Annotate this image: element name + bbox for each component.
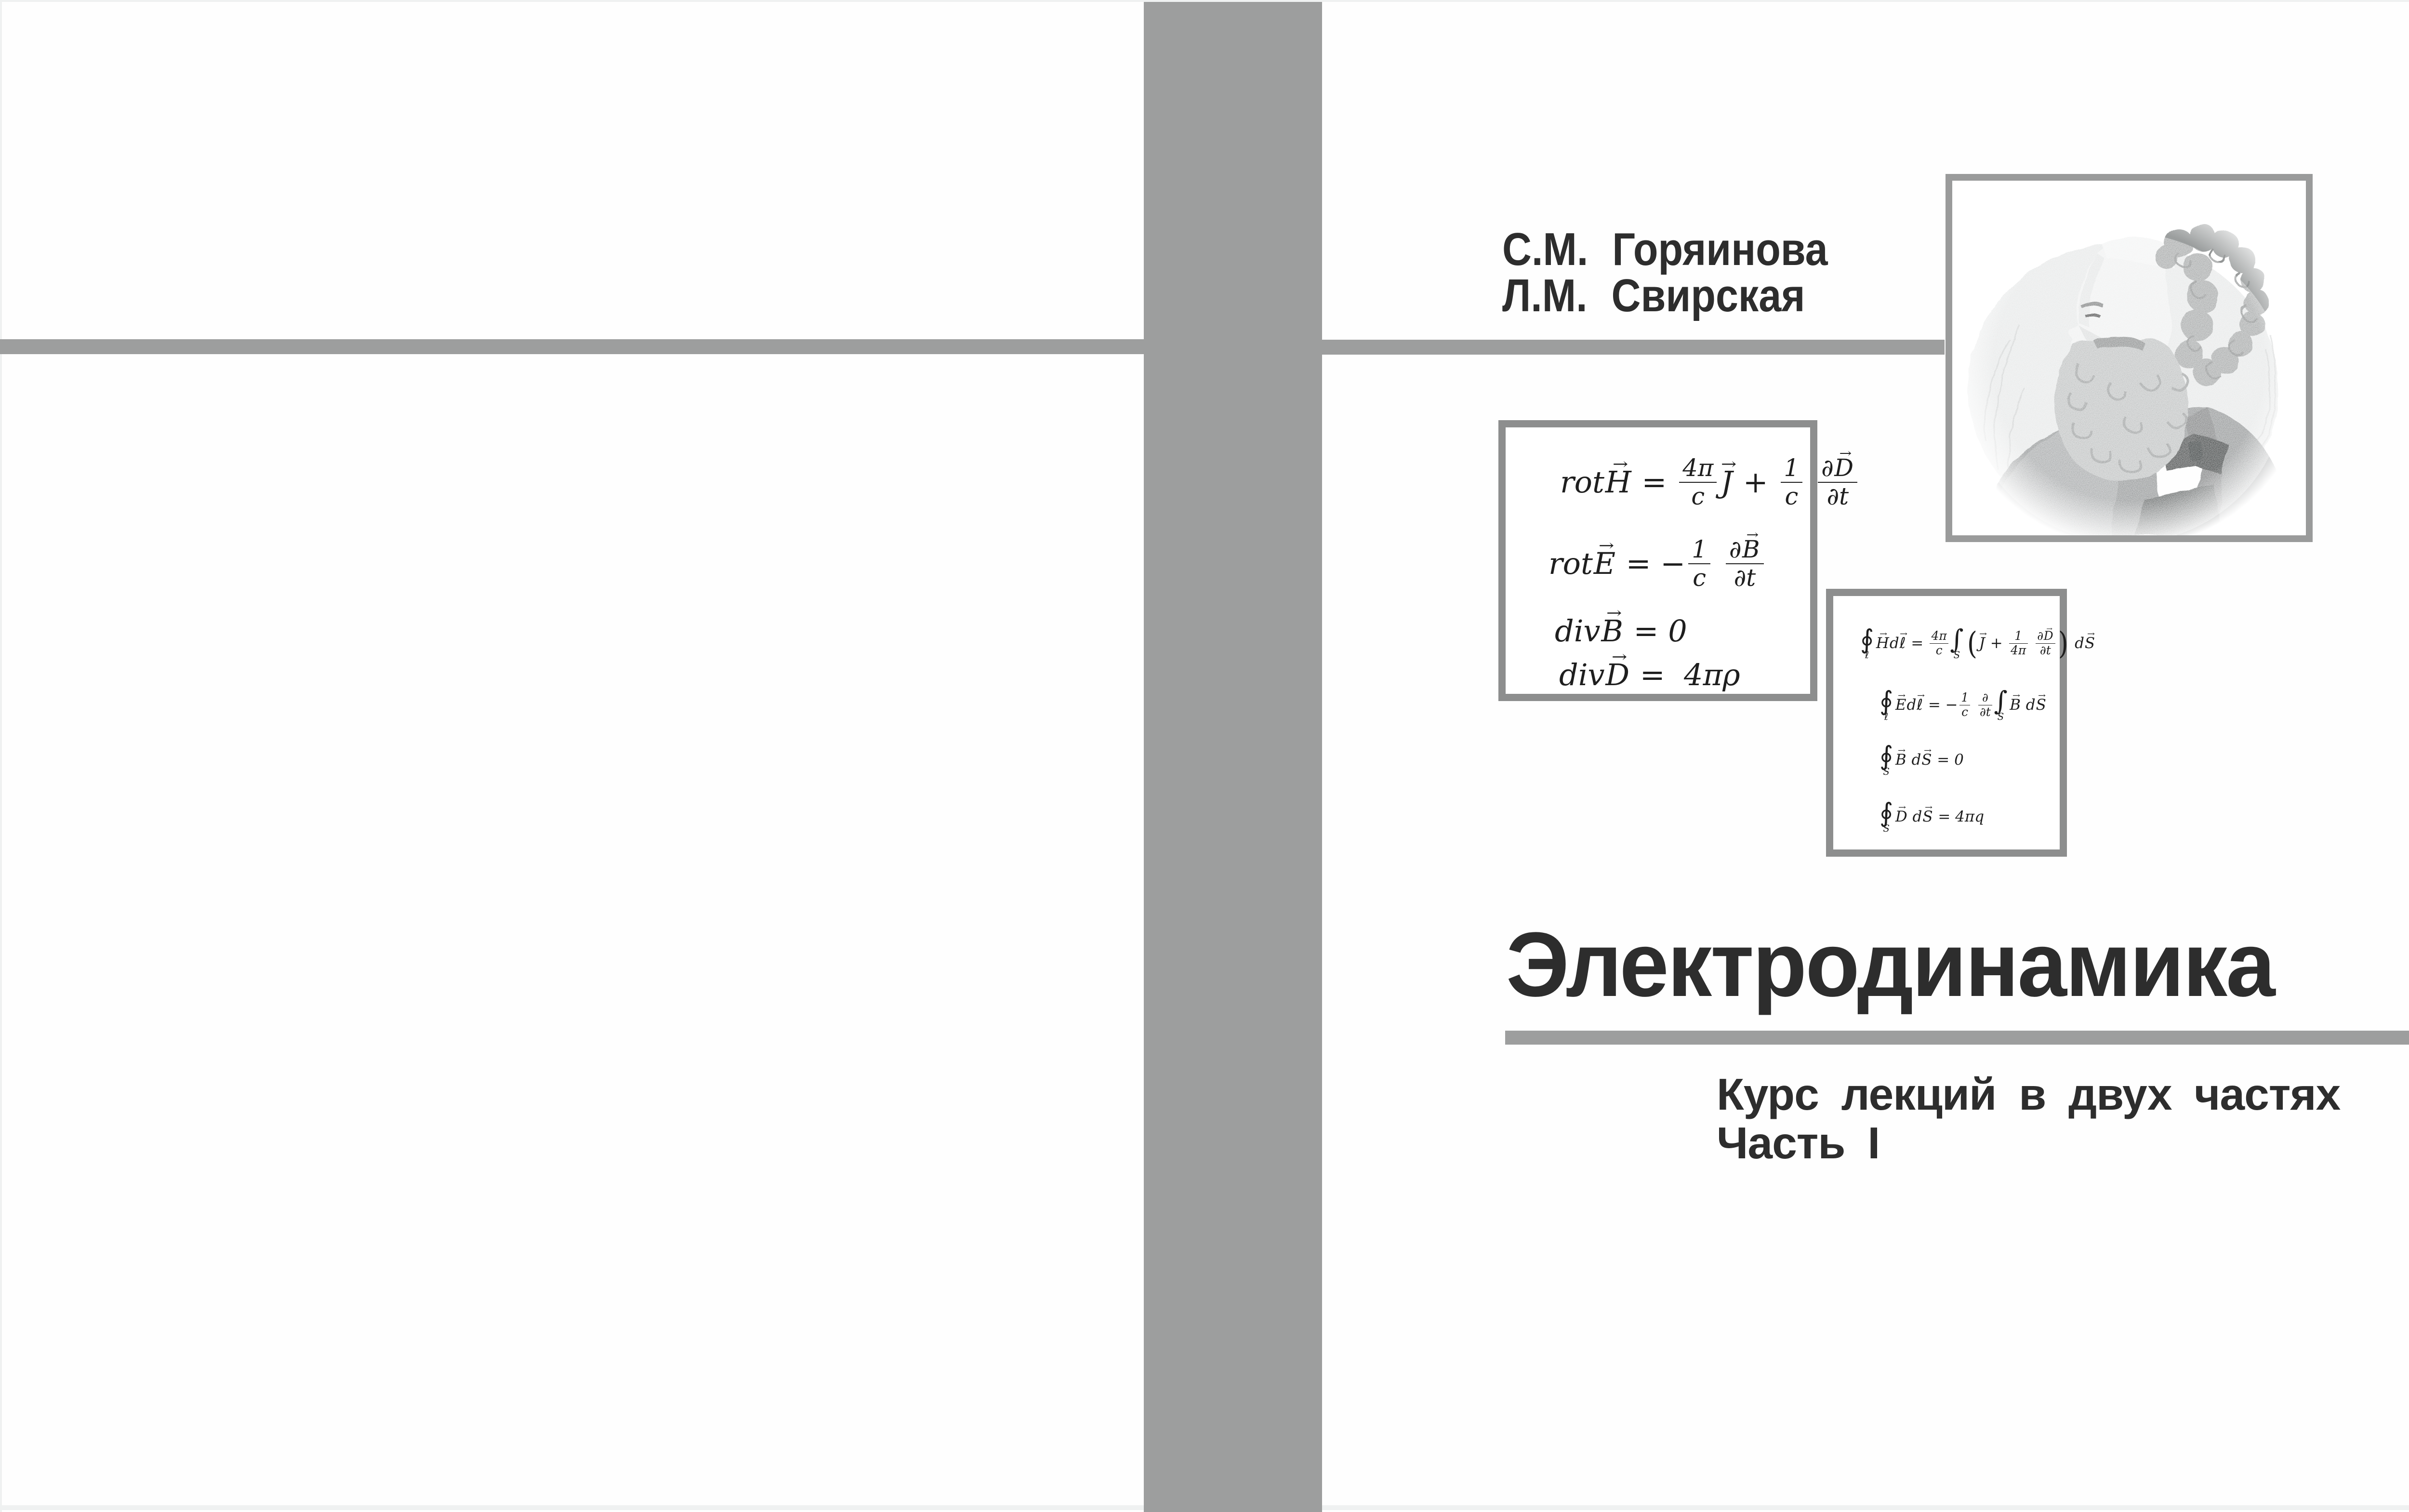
maxwell-diff-eq-1: rotH = 4πcJ + 1c ∂D∂t — [1560, 454, 1861, 510]
maxwell-portrait-frame — [1946, 174, 2313, 542]
maxwell-int-eq-2: ∮ℓEdℓ = −1c ∂∂t∫SB dS — [1880, 689, 2047, 721]
front-cover: С.М. Горяинова Л.М. Свирская rotH = 4πcJ… — [1322, 0, 2409, 1512]
maxwell-diff-eq-3: divB = 0 — [1555, 616, 1687, 646]
subtitle-line-2: Часть I — [1717, 1121, 1880, 1166]
maxwell-portrait-image — [1952, 181, 2306, 535]
title-underline-bar — [1505, 1031, 2409, 1045]
back-cover — [0, 0, 1144, 1512]
maxwell-integral-box: ∮ℓHdℓ = 4πc∫S(J + 14π ∂D∂t) dS ∮ℓEdℓ = −… — [1826, 589, 2067, 857]
maxwell-int-eq-4: ∮SD dS = 4πq — [1880, 800, 1984, 833]
accent-bar-back — [0, 339, 1144, 354]
subtitle-line-1: Курс лекций в двух частях — [1717, 1072, 2340, 1117]
maxwell-int-eq-3: ∮SB dS = 0 — [1880, 743, 1964, 776]
book-spine — [1144, 2, 1322, 1512]
book-title: Электродинамика — [1506, 919, 2274, 1010]
maxwell-diff-eq-4: divD = 4πρ — [1559, 660, 1740, 690]
maxwell-differential-box: rotH = 4πcJ + 1c ∂D∂t rotE = −1c ∂B∂t di… — [1498, 420, 1817, 701]
author-2: Л.М. Свирская — [1502, 273, 1828, 319]
author-1: С.М. Горяинова — [1502, 226, 1828, 273]
authors-block: С.М. Горяинова Л.М. Свирская — [1502, 226, 1828, 319]
maxwell-diff-eq-2: rotE = −1c ∂B∂t — [1549, 536, 1767, 592]
maxwell-int-eq-1: ∮ℓHdℓ = 4πc∫S(J + 14π ∂D∂t) dS — [1860, 627, 2095, 660]
book-cover-spread: С.М. Горяинова Л.М. Свирская rotH = 4πcJ… — [0, 0, 2409, 1512]
